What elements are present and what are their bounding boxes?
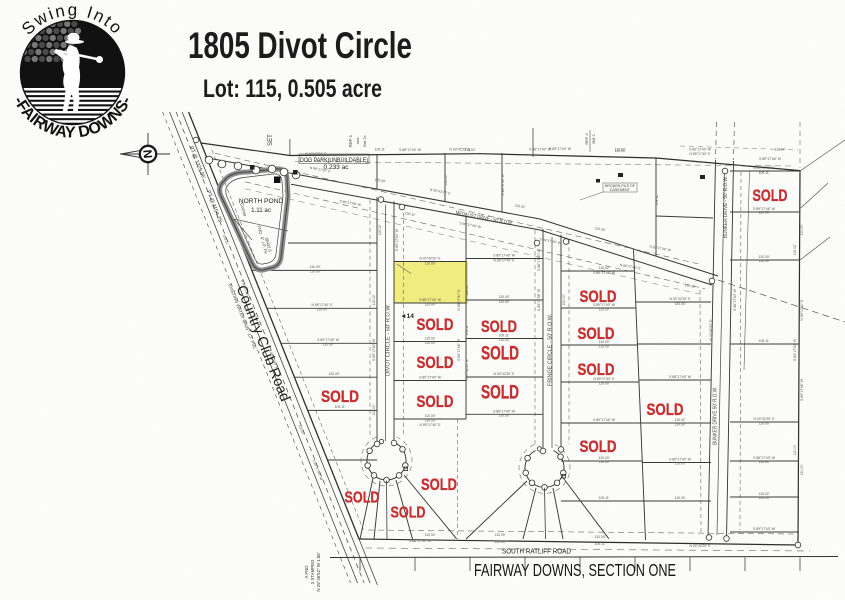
- svg-text:109.11': 109.11': [465, 324, 469, 335]
- svg-text:SOLD: SOLD: [580, 437, 617, 456]
- svg-text:120.00': 120.00': [674, 302, 685, 306]
- svg-text:N 00°42'20" E: N 00°42'20" E: [669, 297, 691, 301]
- svg-text:110.00': 110.00': [310, 270, 321, 274]
- svg-text:110.00': 110.00': [425, 341, 436, 345]
- svg-text:115.02': 115.02': [615, 148, 626, 152]
- svg-text:120.00': 120.00': [562, 294, 566, 305]
- svg-text:110.00': 110.00': [800, 224, 804, 235]
- svg-text:BUNKER DRIVE 50' R.O.W.: BUNKER DRIVE 50' R.O.W.: [713, 387, 719, 445]
- svg-text:SOLD: SOLD: [421, 475, 457, 494]
- svg-text:S 89°17'40" W: S 89°17'40" W: [395, 228, 399, 251]
- svg-text:110.00': 110.00': [595, 535, 606, 539]
- svg-text:110.00': 110.00': [425, 303, 436, 307]
- svg-text:EASEMENT: EASEMENT: [610, 188, 631, 192]
- svg-text:115.02': 115.02': [599, 266, 610, 270]
- svg-text:109.11': 109.11': [759, 171, 770, 175]
- svg-text:SOLD: SOLD: [345, 490, 380, 507]
- svg-text:S 89°17'46" W: S 89°17'46" W: [457, 338, 461, 361]
- svg-text:110.00': 110.00': [425, 533, 436, 537]
- svg-text:Lot: 115, 0.505 acre: Lot: 115, 0.505 acre: [203, 75, 382, 103]
- svg-text:BUNKER DRIVE - 50' R.O.W.: BUNKER DRIVE - 50' R.O.W.: [723, 176, 729, 238]
- svg-text:110.00': 110.00': [425, 419, 436, 423]
- svg-text:109.11': 109.11': [499, 334, 510, 338]
- svg-text:120.00': 120.00': [498, 295, 509, 299]
- svg-text:110.00': 110.00': [310, 265, 321, 269]
- svg-text:S 89°17'40" W: S 89°17'40" W: [549, 147, 572, 151]
- svg-text:A FND: A FND: [304, 566, 309, 579]
- svg-text:110.00': 110.00': [675, 462, 686, 466]
- svg-text:110.00': 110.00': [323, 343, 334, 347]
- svg-text:SOLD: SOLD: [481, 383, 519, 404]
- svg-text:NORTH POND: NORTH POND: [239, 198, 283, 205]
- svg-text:110.00': 110.00': [599, 382, 610, 386]
- svg-text:115.02': 115.02': [378, 224, 382, 235]
- svg-text:N 00°42'20" E: N 00°42'20" E: [465, 359, 469, 381]
- svg-text:109.11': 109.11': [595, 542, 606, 546]
- svg-text:S 88°17'40" W: S 88°17'40" W: [529, 148, 552, 152]
- svg-text:110.00': 110.00': [759, 211, 770, 215]
- svg-text:◄14: ◄14: [400, 313, 414, 320]
- svg-text:DOG PARK(UNBUILDABLE): DOG PARK(UNBUILDABLE): [300, 157, 368, 164]
- svg-text:109.11': 109.11': [375, 148, 386, 152]
- svg-text:and: and: [355, 138, 360, 145]
- svg-text:N 89°17'40" E: N 89°17'40" E: [689, 152, 711, 156]
- svg-text:3 STAMPED: 3 STAMPED: [310, 560, 315, 585]
- svg-text:110.00': 110.00': [372, 404, 376, 415]
- svg-text:N 89°17'40" E: N 89°17'40" E: [593, 377, 615, 381]
- svg-text:N 00°42'20" E: N 00°42'20" E: [753, 417, 775, 421]
- svg-text:S 89°17'46" W: S 89°17'46" W: [317, 338, 340, 342]
- svg-text:S 89°17'40" W: S 89°17'40" W: [753, 527, 776, 531]
- svg-text:S 89°17'46" W: S 89°17'46" W: [800, 378, 804, 401]
- svg-text:N 89°17'40" E: N 89°17'40" E: [311, 303, 333, 307]
- svg-text:115.02': 115.02': [372, 294, 376, 305]
- svg-text:FAIRWAY DOWNS, SECTION ONE: FAIRWAY DOWNS, SECTION ONE: [474, 560, 676, 580]
- svg-text:N 89°17'40" E: N 89°17'40" E: [457, 289, 461, 311]
- svg-text:109.11': 109.11': [599, 496, 610, 500]
- svg-text:120.00': 120.00': [800, 464, 804, 475]
- svg-text:S 88°17'40" W: S 88°17'40" W: [733, 288, 737, 311]
- svg-text:SOLD: SOLD: [481, 344, 519, 365]
- svg-text:S 89°17'40" W: S 89°17'40" W: [689, 148, 712, 152]
- svg-text:115.02': 115.02': [675, 418, 686, 422]
- svg-text:110.00': 110.00': [759, 259, 770, 263]
- svg-text:110.00': 110.00': [793, 444, 797, 455]
- svg-text:BM 2: BM 2: [591, 134, 596, 144]
- svg-text:110.00': 110.00': [759, 422, 770, 426]
- svg-text:S 88°17'40" W: S 88°17'40" W: [419, 298, 442, 302]
- svg-text:N 89°17'40" E: N 89°17'40" E: [419, 423, 441, 427]
- svg-text:N 25°45'52" W 1.56': N 25°45'52" W 1.56': [316, 552, 321, 591]
- svg-text:120.00': 120.00': [328, 372, 339, 376]
- svg-text:S 88°17'40" W: S 88°17'40" W: [669, 375, 692, 379]
- svg-text:N 00°42'20" E: N 00°42'20" E: [419, 257, 441, 261]
- svg-text:REF-1: REF-1: [348, 134, 353, 147]
- svg-text:110.00': 110.00': [495, 533, 506, 537]
- svg-text:110.00': 110.00': [425, 262, 436, 266]
- svg-text:115.02': 115.02': [425, 337, 436, 341]
- svg-text:110.00': 110.00': [444, 174, 448, 185]
- svg-text:S 88°17'40" W: S 88°17'40" W: [537, 248, 541, 271]
- svg-text:N 00°42'20" E: N 00°42'20" E: [493, 372, 515, 376]
- svg-text:S 89°17'46" W: S 89°17'46" W: [759, 157, 782, 161]
- svg-text:S 89°17'40" W: S 89°17'40" W: [793, 338, 797, 361]
- svg-text:REF #: REF #: [584, 133, 589, 145]
- svg-text:110.00': 110.00': [675, 496, 686, 500]
- svg-text:Bar 2c: Bar 2c: [362, 135, 367, 147]
- svg-text:SOLD: SOLD: [417, 353, 454, 372]
- svg-text:N 89°17'40" E: N 89°17'40" E: [493, 259, 515, 263]
- svg-text:110.00': 110.00': [599, 460, 610, 464]
- svg-text:S 89°17'46" W: S 89°17'46" W: [593, 271, 616, 275]
- svg-text:N 00°42'20" E: N 00°42'20" E: [305, 152, 327, 156]
- svg-text:110.00': 110.00': [425, 414, 436, 418]
- svg-text:S 88°17'40" W: S 88°17'40" W: [399, 148, 422, 152]
- svg-text:1.11 ac: 1.11 ac: [251, 207, 271, 214]
- svg-text:FRINGE CIRCLE - 50' R.O.W.: FRINGE CIRCLE - 50' R.O.W.: [548, 314, 554, 386]
- svg-text:DIVOT CIRCLE - 50' R.O.W.: DIVOT CIRCLE - 50' R.O.W.: [386, 304, 392, 376]
- svg-text:N 89°17'40" E: N 89°17'40" E: [501, 174, 505, 196]
- svg-text:110.00': 110.00': [775, 148, 786, 152]
- svg-text:109.11': 109.11': [759, 339, 770, 343]
- svg-text:110.00': 110.00': [599, 345, 610, 349]
- svg-text:S 89°17'40" W: S 89°17'40" W: [372, 338, 376, 361]
- svg-text:SOLD: SOLD: [647, 400, 684, 419]
- svg-text:110.00': 110.00': [675, 423, 686, 427]
- svg-text:N: N: [140, 149, 155, 159]
- svg-text:SOLD: SOLD: [753, 186, 788, 205]
- svg-text:S 89°17'46" W: S 89°17'46" W: [593, 418, 616, 422]
- svg-text:S 89°17'46" W: S 89°17'46" W: [493, 254, 516, 258]
- svg-text:SET: SET: [268, 134, 274, 146]
- svg-text:N 00°42'20" E: N 00°42'20" E: [449, 148, 471, 152]
- svg-text:120.00': 120.00': [465, 284, 469, 295]
- svg-text:N 89°17'40" E: N 89°17'40" E: [753, 166, 775, 170]
- svg-text:115.02': 115.02': [793, 244, 797, 255]
- svg-text:SOLD: SOLD: [321, 387, 359, 406]
- svg-text:S 89°17'40" W: S 89°17'40" W: [419, 376, 442, 380]
- svg-text:109.11': 109.11': [655, 194, 659, 205]
- svg-text:110.00': 110.00': [759, 496, 770, 500]
- svg-text:S 89°17'40" W: S 89°17'40" W: [593, 303, 616, 307]
- svg-text:N 00°42'20" E: N 00°42'20" E: [689, 544, 711, 548]
- svg-text:110.00': 110.00': [317, 308, 328, 312]
- svg-text:S 88°17'40" W: S 88°17'40" W: [409, 539, 432, 543]
- svg-text:110.00': 110.00': [499, 414, 510, 418]
- svg-text:N 00°42'20" E: N 00°42'20" E: [709, 319, 713, 341]
- svg-text:110.00': 110.00': [599, 340, 610, 344]
- svg-text:109.11': 109.11': [335, 405, 346, 409]
- svg-text:SOLD: SOLD: [417, 392, 454, 411]
- svg-text:1805 Divot Circle: 1805 Divot Circle: [188, 25, 412, 66]
- svg-text:SOLD: SOLD: [391, 505, 426, 522]
- svg-text:110.00': 110.00': [499, 300, 510, 304]
- svg-text:110.00': 110.00': [759, 460, 770, 464]
- svg-text:120.00': 120.00': [494, 540, 505, 544]
- svg-text:N 89°17'40" E: N 89°17'40" E: [800, 299, 804, 321]
- svg-text:SOUTH RATLIFF ROAD: SOUTH RATLIFF ROAD: [502, 547, 571, 556]
- svg-text:110.00': 110.00': [599, 308, 610, 312]
- svg-text:SOLD: SOLD: [417, 315, 454, 334]
- svg-text:110.00': 110.00': [499, 338, 510, 342]
- svg-text:S 89°17'46" W: S 89°17'46" W: [537, 288, 541, 311]
